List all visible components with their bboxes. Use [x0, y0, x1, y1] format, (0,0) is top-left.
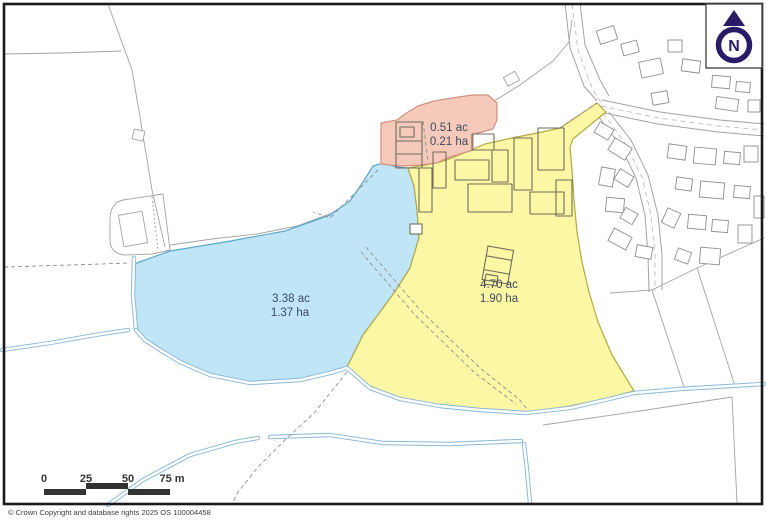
scale-tick-0: 0	[41, 473, 47, 485]
blue-parcel-area-hectares: 1.37 ha	[271, 307, 310, 319]
yellow-parcel-area-acres: 4.70 ac	[480, 279, 518, 291]
parcel-map-page: 0.51 ac 0.21 ha 3.38 ac 1.37 ha 4.70 ac …	[0, 0, 766, 520]
yellow-parcel-area-hectares: 1.90 ha	[480, 293, 519, 305]
north-arrow: N	[706, 4, 762, 68]
blue-parcel-area-acres: 3.38 ac	[272, 293, 310, 305]
scale-segment-1	[44, 489, 86, 495]
scale-tick-75m: 75 m	[159, 473, 184, 485]
pink-parcel-area-acres: 0.51 ac	[430, 122, 468, 134]
pink-parcel-area-hectares: 0.21 ha	[430, 136, 469, 148]
north-label: N	[728, 38, 740, 55]
copyright-text: © Crown Copyright and database rights 20…	[8, 508, 211, 517]
scale-segment-2	[86, 483, 128, 489]
scale-segment-3	[128, 489, 170, 495]
map-canvas: 0.51 ac 0.21 ha 3.38 ac 1.37 ha 4.70 ac …	[0, 0, 766, 520]
